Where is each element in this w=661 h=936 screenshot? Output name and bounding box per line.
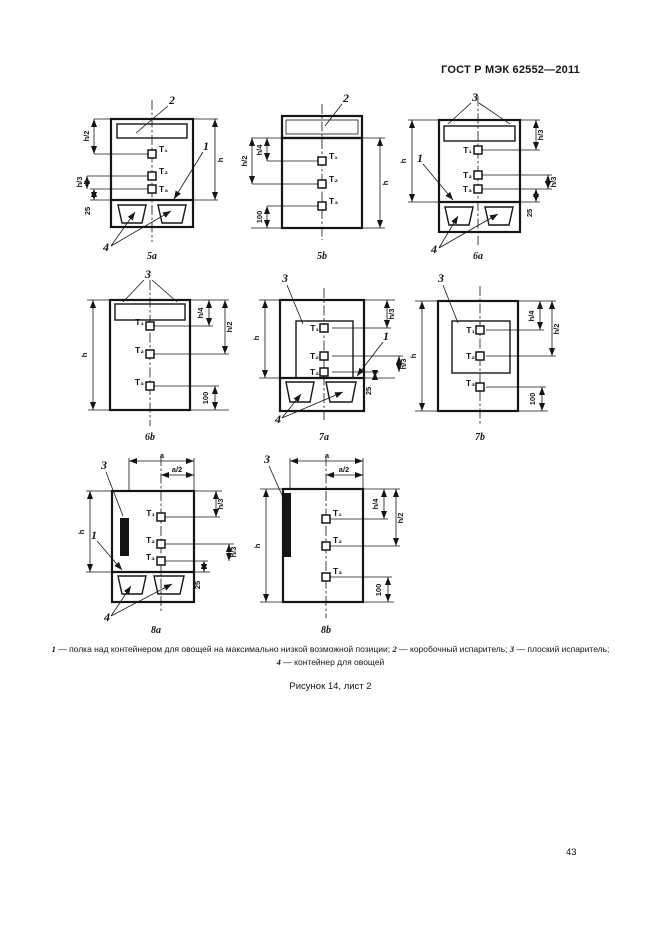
page-number: 43 xyxy=(566,847,577,858)
callout-leader xyxy=(106,472,123,516)
callout-shelf: 1 xyxy=(91,528,97,542)
callout-leader xyxy=(443,285,458,323)
callout-leader xyxy=(282,392,343,418)
legend-num-4: 4 xyxy=(277,657,281,667)
legend-text-1: — полка над контейнером для овощей на ма… xyxy=(58,644,392,654)
sensor-label-t1: T₁ xyxy=(135,317,144,327)
sensor-label-t2: T₂ xyxy=(333,535,342,545)
vegetable-container xyxy=(118,576,146,594)
dim-label: h xyxy=(216,157,225,162)
vegetable-container xyxy=(445,207,473,225)
dim-label: h/4 xyxy=(255,144,264,156)
vegetable-container xyxy=(286,382,314,402)
dim-label: 25 xyxy=(525,209,534,217)
flat-evaporator xyxy=(444,126,515,141)
dim-label: h/4 xyxy=(527,310,536,322)
dim-label: h/2 xyxy=(225,322,234,333)
diagram-8a: T₁ T₂ T₃ a a/2 h h/3 h/3 25 3 1 4 8а xyxy=(76,446,246,636)
dim-label: 25 xyxy=(193,581,202,589)
legend-num-1: 1 xyxy=(52,644,56,654)
sensor-square-t3 xyxy=(320,368,328,376)
callout-flat-evaporator: 3 xyxy=(263,452,270,466)
dim-label: h/2 xyxy=(552,324,561,335)
callout-leader xyxy=(111,212,135,246)
sensor-square-t1 xyxy=(322,515,330,523)
sensor-square-t1 xyxy=(474,146,482,154)
diagram-caption: 7а xyxy=(319,432,329,443)
sensor-square-t2 xyxy=(474,171,482,179)
callout-flat-evaporator: 3 xyxy=(100,458,107,472)
sensor-square-t2 xyxy=(157,540,165,548)
dim-label: h/2 xyxy=(240,156,249,167)
callout-flat-evaporator: 3 xyxy=(437,271,444,285)
sensor-label-t3: T₃ xyxy=(463,184,472,194)
sensor-square-t3 xyxy=(318,202,326,210)
dim-label: 25 xyxy=(364,387,373,395)
legend-text-2: — коробочный испаритель; xyxy=(399,644,510,654)
dim-label: 25 xyxy=(83,207,92,215)
sensor-square-t3 xyxy=(157,557,165,565)
dim-label: h xyxy=(399,158,408,163)
dim-label: a/2 xyxy=(339,465,349,474)
document-page: ГОСТ Р МЭК 62552—2011 T₁ T₂ T₃ h/2 h/3 2… xyxy=(0,0,661,936)
sensor-square-t2 xyxy=(318,180,326,188)
callout-flat-evaporator: 3 xyxy=(471,90,478,104)
dim-label: h/2 xyxy=(82,131,91,142)
sensor-square-t3 xyxy=(148,185,156,193)
sensor-label-t2: T₂ xyxy=(463,170,472,180)
callout-flat-evaporator: 3 xyxy=(281,271,288,285)
sensor-label-t3: T₃ xyxy=(135,377,144,387)
dim-label: h xyxy=(80,352,89,357)
diagram-8b: T₁ T₂ T₃ a a/2 h h/4 h/2 100 3 8b xyxy=(246,446,416,636)
sensor-label-t1: T₁ xyxy=(329,151,338,161)
sensor-label-t2: T₂ xyxy=(135,345,144,355)
sensor-label-t2: T₂ xyxy=(466,351,475,361)
sensor-label-t3: T₃ xyxy=(466,378,475,388)
diagram-caption: 5b xyxy=(317,251,327,262)
dim-label: h xyxy=(381,180,390,185)
vegetable-container xyxy=(485,207,513,225)
diagram-5a: T₁ T₂ T₃ h/2 h/3 25 h 2 1 4 5а xyxy=(78,90,238,264)
sensor-label-t3: T₃ xyxy=(333,566,342,576)
figure-caption: Рисунок 14, лист 2 xyxy=(0,681,661,692)
sensor-label-t1: T₁ xyxy=(463,145,472,155)
legend-text-3: — плоский испаритель; xyxy=(517,644,610,654)
sensor-square-t1 xyxy=(146,322,154,330)
dim-label: h/3 xyxy=(229,547,238,558)
dim-label: 100 xyxy=(255,211,264,224)
diagram-caption: 8b xyxy=(321,625,331,636)
callout-leader xyxy=(287,285,303,324)
diagram-caption: 6b xyxy=(145,432,155,443)
sensor-square-t2 xyxy=(476,352,484,360)
diagram-caption: 8а xyxy=(151,625,161,636)
diagram-caption: 7b xyxy=(475,432,485,443)
callout-box-evaporator: 2 xyxy=(342,91,349,105)
callout-leader xyxy=(282,394,301,418)
sensor-square-t3 xyxy=(146,382,154,390)
document-header: ГОСТ Р МЭК 62552—2011 xyxy=(0,64,580,76)
figure-legend: 1 — полка над контейнером для овощей на … xyxy=(50,643,611,669)
dim-label: h xyxy=(253,543,262,548)
sensor-square-t2 xyxy=(146,350,154,358)
callout-leader xyxy=(174,152,203,199)
sensor-label-t3: T₃ xyxy=(329,196,338,206)
dim-label: h/2 xyxy=(396,513,405,524)
callout-flat-evaporator: 3 xyxy=(144,267,151,281)
callout-container: 4 xyxy=(274,412,281,426)
dim-label: h/3 xyxy=(387,309,396,320)
vegetable-container xyxy=(326,382,356,402)
dim-label: a xyxy=(160,451,165,460)
side-flat-evaporator xyxy=(283,493,291,557)
sensor-square-t2 xyxy=(322,542,330,550)
dim-label: 100 xyxy=(374,584,383,597)
sensor-label-t1: T₁ xyxy=(159,144,168,154)
callout-leader xyxy=(97,541,122,570)
sensor-label-t2: T₂ xyxy=(146,535,155,545)
sensor-label-t3: T₃ xyxy=(146,552,155,562)
sensor-square-t3 xyxy=(322,573,330,581)
dim-label: h/3 xyxy=(216,499,225,510)
dim-label: a/2 xyxy=(172,465,182,474)
sensor-square-t3 xyxy=(476,383,484,391)
diagram-caption: 6а xyxy=(473,251,483,262)
vegetable-container xyxy=(158,205,186,223)
dim-label: 100 xyxy=(528,393,537,406)
dim-label: 100 xyxy=(201,392,210,405)
callout-container: 4 xyxy=(430,242,437,256)
dim-label: h/3 xyxy=(549,177,558,188)
legend-text-4: — контейнер для овощей xyxy=(283,657,384,667)
diagram-7a: T₁ T₂ T₃ h h/3 h/3 25 3 1 4 7а xyxy=(247,268,407,445)
dim-label: h/4 xyxy=(371,498,380,510)
sensor-square-t1 xyxy=(157,513,165,521)
legend-num-2: 2 xyxy=(393,644,397,654)
sensor-label-t3: T₃ xyxy=(159,184,168,194)
dim-label: h/3 xyxy=(536,130,545,141)
dim-label: h/3 xyxy=(75,177,84,188)
sensor-square-t1 xyxy=(476,326,484,334)
callout-leader xyxy=(357,342,383,376)
callout-shelf: 1 xyxy=(383,329,389,343)
sensor-label-t1: T₁ xyxy=(333,508,342,518)
sensor-label-t1: T₁ xyxy=(466,325,475,335)
sensor-square-t3 xyxy=(474,185,482,193)
callout-container: 4 xyxy=(102,240,109,254)
dim-label: h xyxy=(252,335,261,340)
sensor-label-t2: T₂ xyxy=(329,174,338,184)
sensor-label-t3: T₃ xyxy=(310,367,319,377)
dim-label: h/4 xyxy=(196,307,205,319)
vegetable-container xyxy=(118,205,146,223)
dim-label: a xyxy=(325,451,330,460)
diagram-caption: 5а xyxy=(147,251,157,262)
diagram-7b: T₁ T₂ T₃ h h/4 h/2 100 3 7b xyxy=(400,268,562,445)
diagram-6b: T₁ T₂ T₃ h h/4 h/2 100 3 6b xyxy=(75,268,235,445)
callout-leader xyxy=(123,280,144,302)
callout-shelf: 1 xyxy=(203,139,209,153)
sensor-label-t2: T₂ xyxy=(310,351,319,361)
diagram-5b: T₁ T₂ T₃ h/4 h/2 100 h 2 5b xyxy=(237,90,395,264)
sensor-square-t1 xyxy=(318,157,326,165)
sensor-label-t1: T₁ xyxy=(146,508,155,518)
dim-label: h xyxy=(409,353,418,358)
callout-box-evaporator: 2 xyxy=(168,93,175,107)
sensor-square-t2 xyxy=(320,352,328,360)
side-flat-evaporator xyxy=(120,518,129,556)
sensor-square-t1 xyxy=(148,150,156,158)
callout-leader xyxy=(269,466,286,504)
legend-num-3: 3 xyxy=(510,644,514,654)
callout-leader xyxy=(152,280,177,302)
sensor-square-t2 xyxy=(148,172,156,180)
sensor-label-t2: T₂ xyxy=(159,166,168,176)
diagram-6a: T₁ T₂ T₃ h h/3 h/3 25 3 1 4 6а xyxy=(390,90,560,264)
sensor-label-t1: T₁ xyxy=(310,323,319,333)
callout-shelf: 1 xyxy=(417,151,423,165)
callout-container: 4 xyxy=(103,610,110,624)
dim-label: h xyxy=(77,529,86,534)
sensor-square-t1 xyxy=(320,324,328,332)
